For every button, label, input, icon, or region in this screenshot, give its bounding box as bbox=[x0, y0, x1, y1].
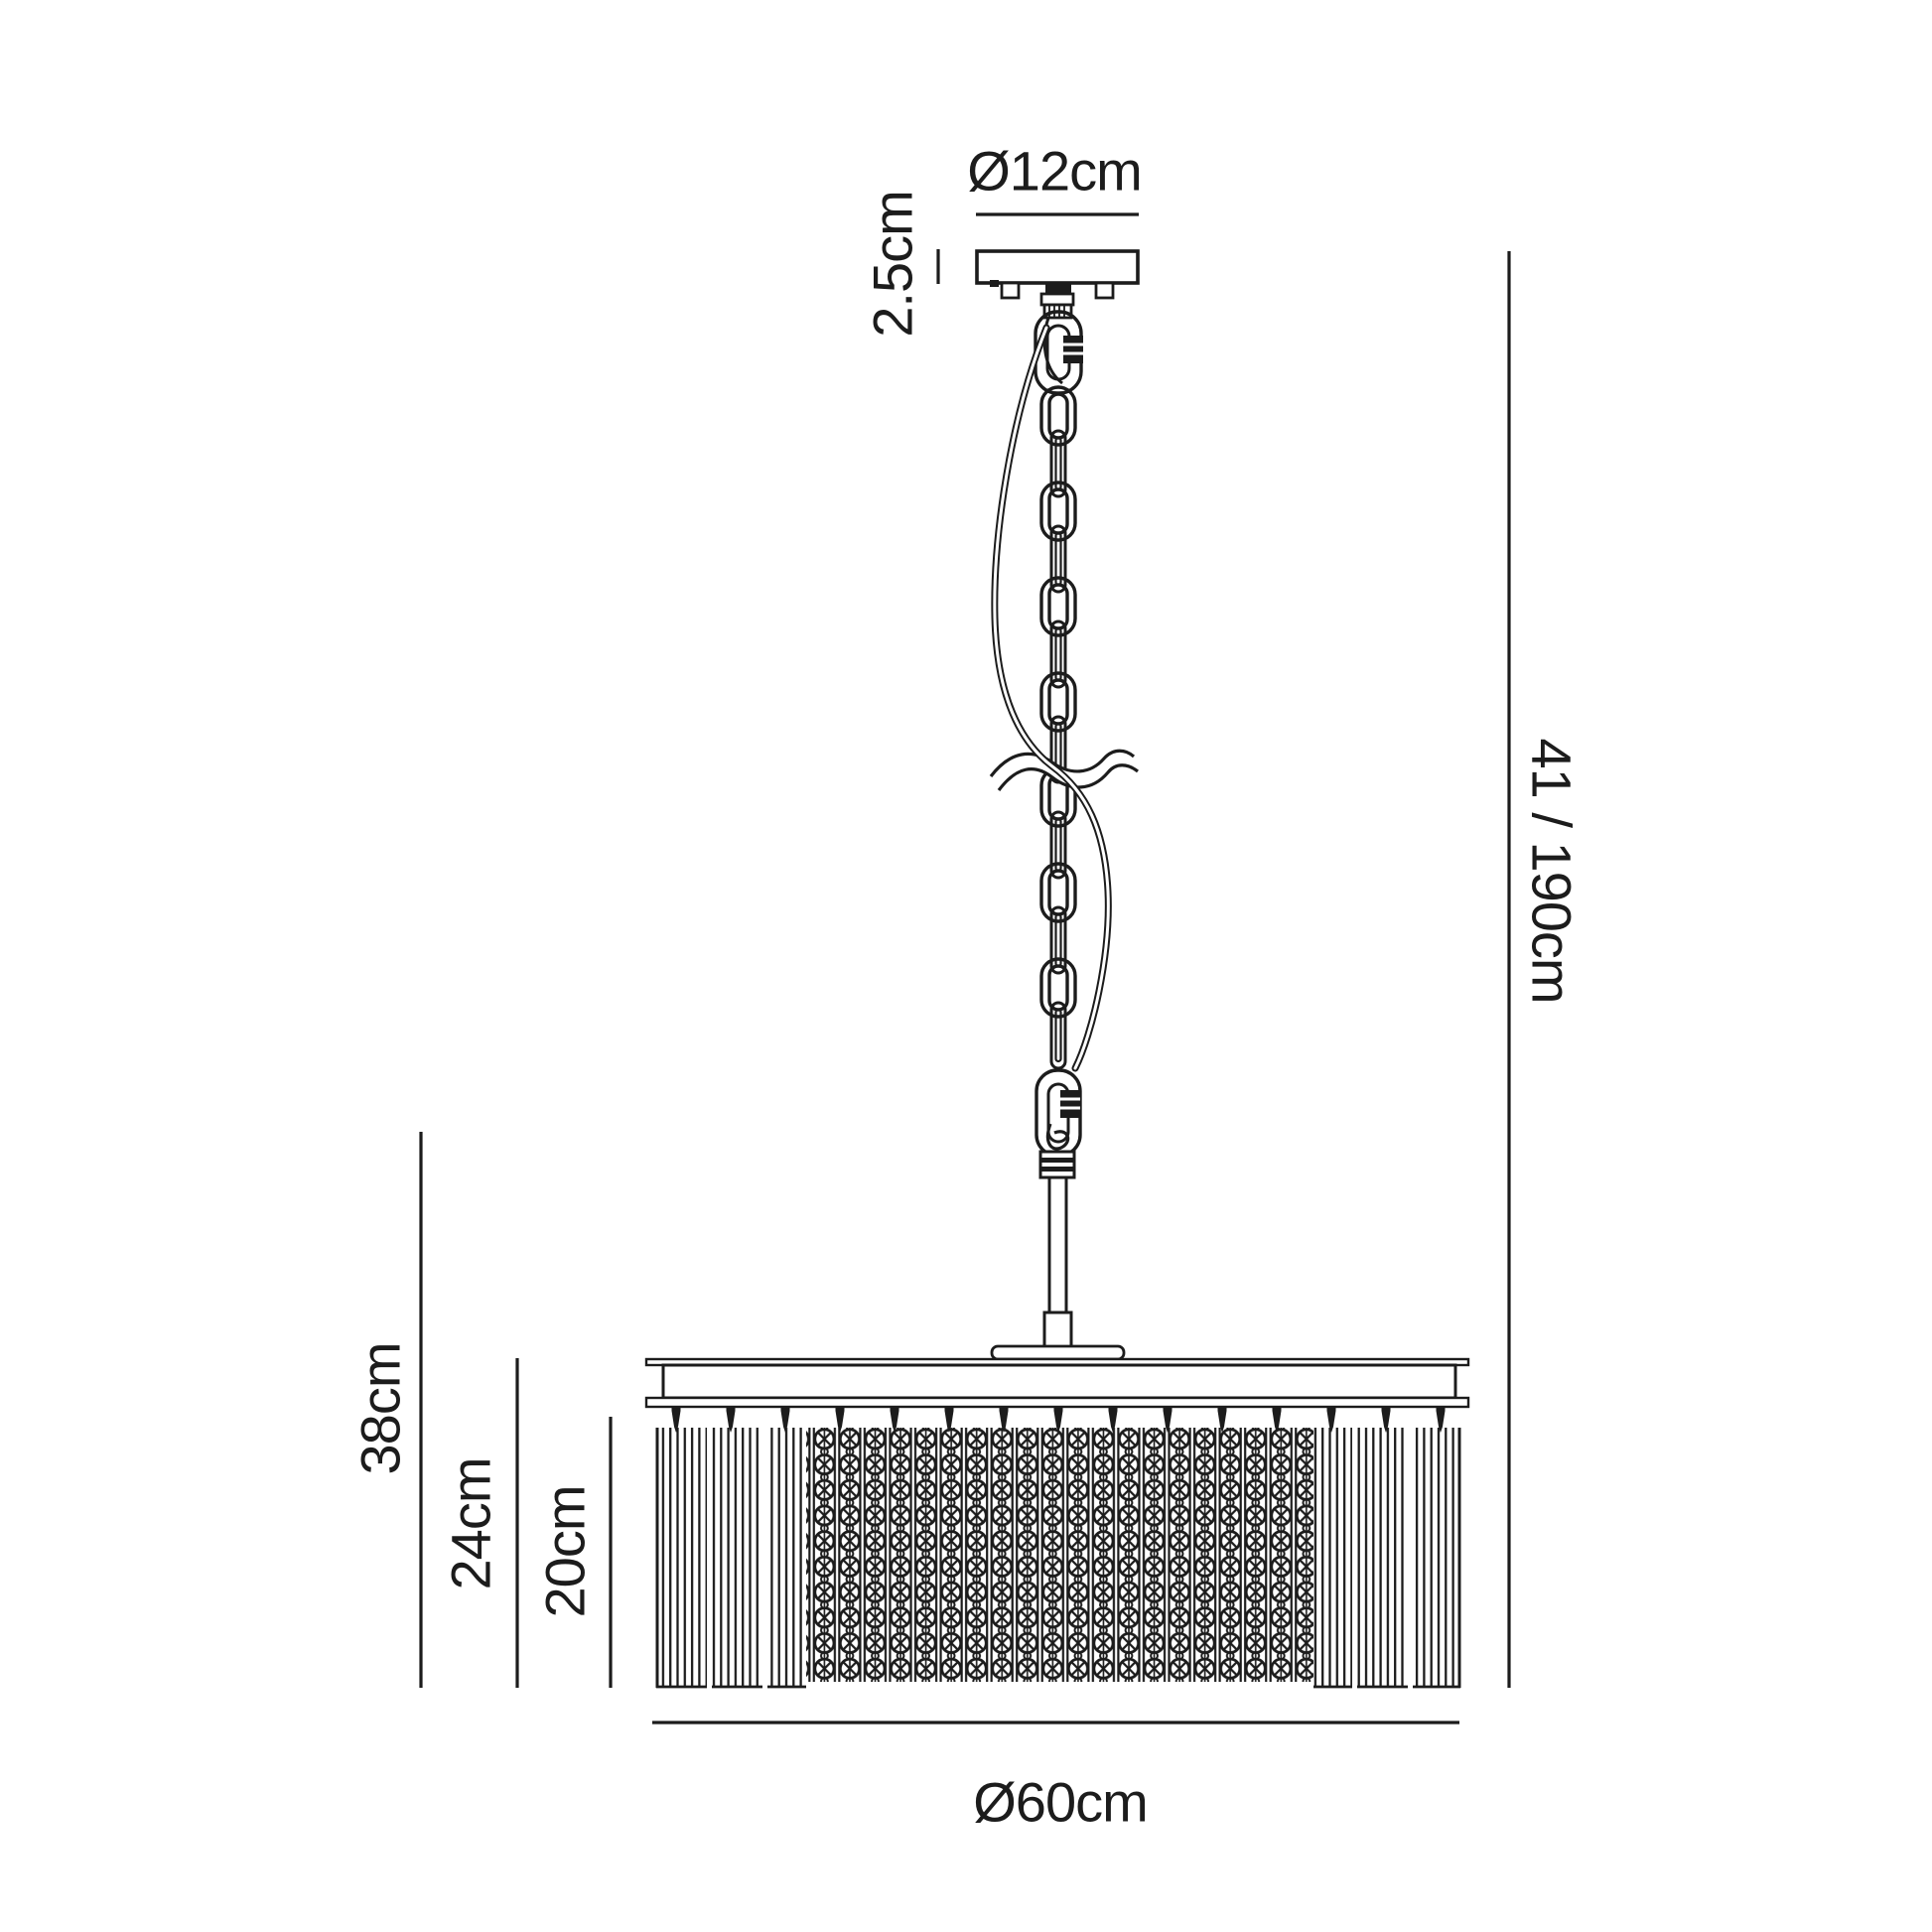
canopy-tab-left bbox=[1002, 283, 1019, 298]
label-frame-drop: 38cm bbox=[348, 1343, 413, 1475]
stem-rod bbox=[1049, 1177, 1066, 1312]
quick-link-nut bbox=[1060, 1090, 1080, 1118]
stem-sleeve bbox=[1044, 1312, 1071, 1348]
hanging-chain bbox=[1041, 387, 1075, 1068]
drop-rod-assembly bbox=[992, 1070, 1124, 1359]
canopy-tab-right bbox=[1096, 283, 1113, 298]
label-overall-drop: 41 / 190cm bbox=[1520, 738, 1585, 1003]
shade-frame bbox=[646, 1359, 1468, 1407]
pendant-light-drawing bbox=[0, 0, 1932, 1932]
label-canopy-diameter: Ø12cm bbox=[967, 139, 1142, 204]
rod-curtain-left bbox=[656, 1428, 806, 1688]
dimension-diagram: Ø12cm 2.5cm 41 / 190cm 38cm 24cm 20cm Ø6… bbox=[0, 0, 1932, 1932]
shade-rail bbox=[646, 1398, 1468, 1407]
stem-base-disc bbox=[992, 1346, 1124, 1359]
canopy-screw bbox=[990, 280, 999, 287]
rod-curtain-right bbox=[1313, 1428, 1460, 1688]
collar bbox=[1040, 1152, 1074, 1177]
label-canopy-height: 2.5cm bbox=[861, 191, 925, 338]
quick-link-top bbox=[1035, 312, 1083, 393]
label-shade-diameter: Ø60cm bbox=[973, 1770, 1148, 1835]
label-shade-height: 24cm bbox=[439, 1458, 503, 1590]
crystal-curtain bbox=[806, 1428, 1313, 1682]
quick-link-nut bbox=[1063, 336, 1083, 363]
shade-top-band bbox=[663, 1365, 1455, 1398]
label-crystal-length: 20cm bbox=[533, 1486, 598, 1618]
